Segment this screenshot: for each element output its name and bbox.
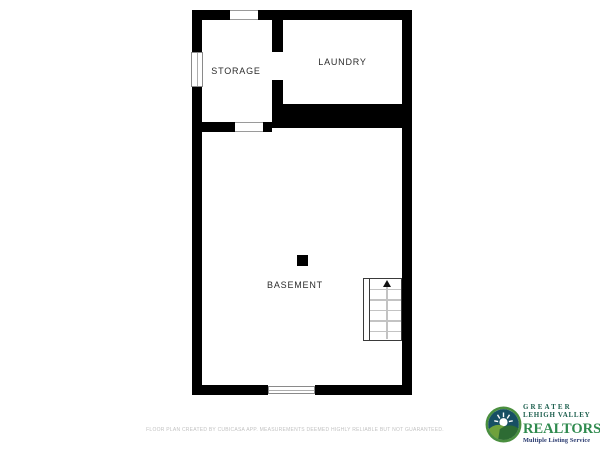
- wall-storage-bottom-right: [263, 122, 272, 132]
- room-label-basement: BASEMENT: [265, 280, 325, 290]
- up-arrow-icon: [383, 280, 391, 287]
- wall-laundry-bottom-band: [272, 104, 402, 128]
- logo-line-realtors: REALTORS®: [523, 419, 598, 437]
- logo-line-lehigh-valley: LEHIGH VALLEY: [523, 412, 598, 420]
- wall-bottom-left-segment: [192, 385, 268, 395]
- wall-left-upper-segment: [192, 10, 202, 52]
- wall-left-lower-segment: [192, 87, 202, 395]
- staircase: [363, 278, 402, 341]
- floor-plan-page: STORAGE LAUNDRY BASEMENT FLOOR PLAN CREA…: [0, 0, 600, 450]
- opening-storage-basement-line2: [235, 131, 263, 132]
- opening-top-inner-line: [230, 19, 258, 20]
- wall-right: [402, 10, 412, 395]
- disclaimer-text: FLOOR PLAN CREATED BY CUBICASA APP. MEAS…: [100, 427, 490, 433]
- glvr-mls-logo: GREATER LEHIGH VALLEY REALTORS® Multiple…: [483, 402, 598, 448]
- window-basement-bottom: [268, 386, 315, 395]
- wall-storage-laundry-upper: [272, 20, 283, 52]
- wall-storage-laundry-lower: [272, 80, 283, 104]
- sunrise-hills-logo-icon: [485, 406, 522, 443]
- logo-line-mls: Multiple Listing Service: [523, 437, 598, 444]
- opening-top-outer-line: [230, 10, 258, 11]
- support-post: [297, 255, 308, 266]
- stair-direction-line: [386, 286, 388, 339]
- wall-bottom-right-segment: [315, 385, 412, 395]
- opening-storage-basement-line: [235, 122, 263, 123]
- window-frame-line: [197, 53, 198, 86]
- wall-top-right-segment: [258, 10, 412, 20]
- wall-storage-bottom-left: [202, 122, 235, 132]
- window-storage-left: [191, 52, 203, 87]
- room-label-laundry: LAUNDRY: [312, 57, 373, 67]
- room-label-storage: STORAGE: [206, 66, 266, 76]
- window-frame-line: [269, 390, 314, 391]
